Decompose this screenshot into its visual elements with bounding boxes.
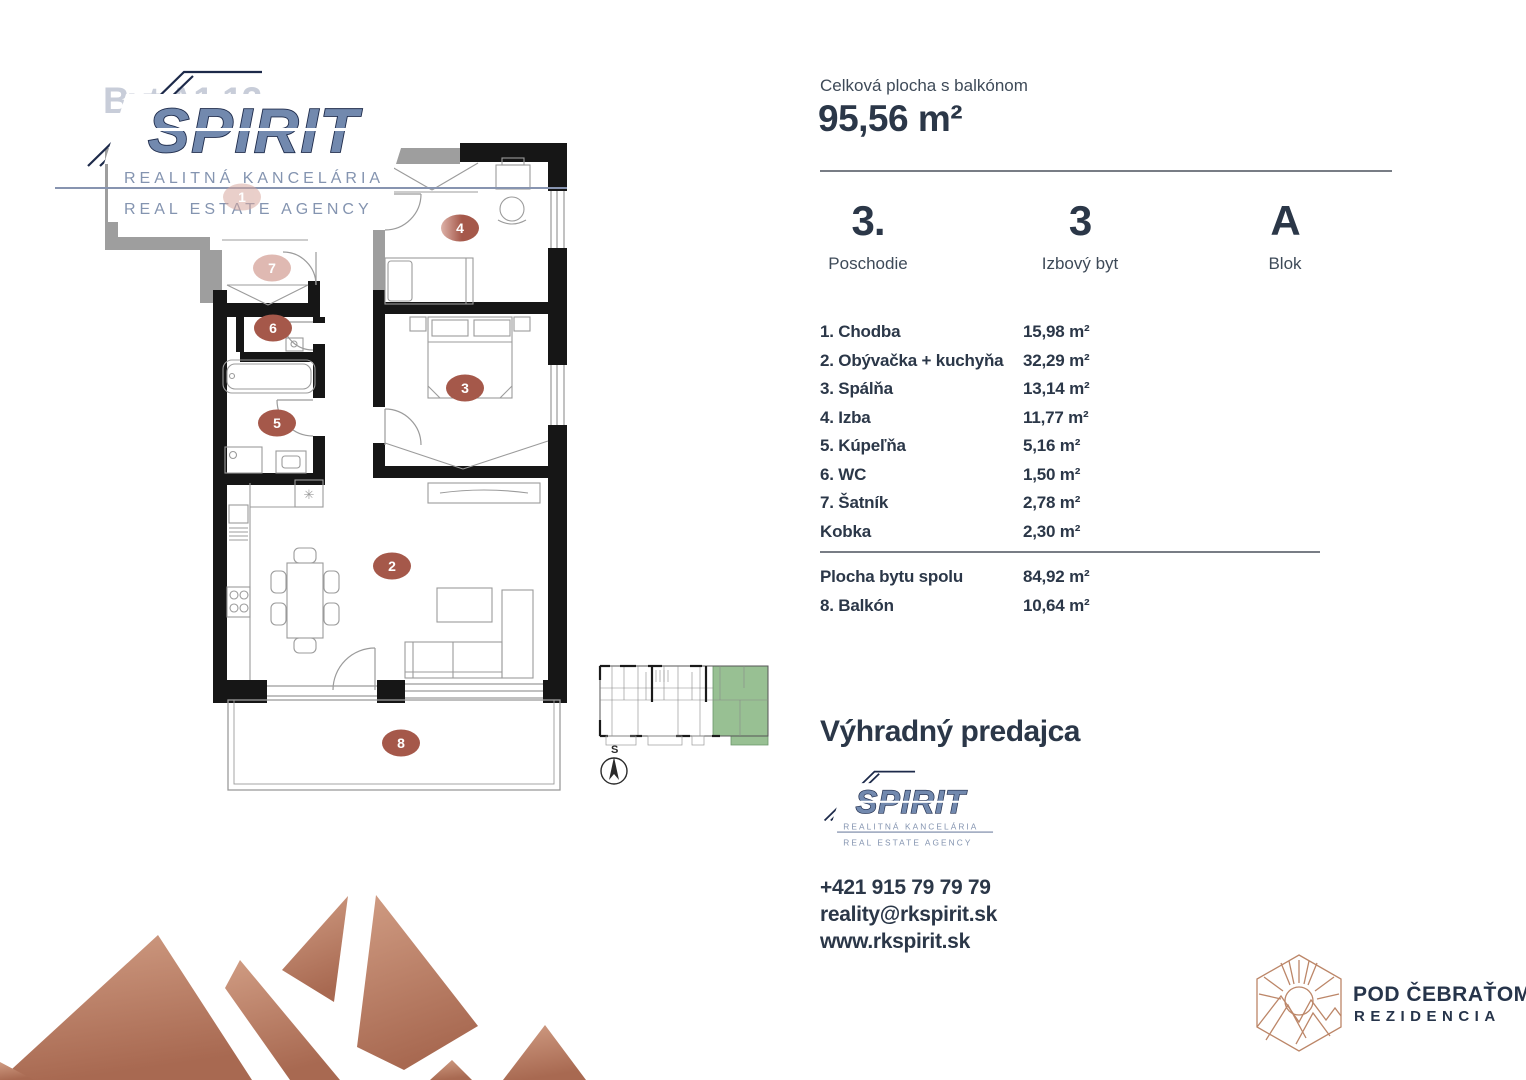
development-subtitle: REZIDENCIA — [1354, 1008, 1501, 1025]
table-row: 2. Obývačka + kuchyňa 32,29 m² — [820, 351, 1320, 379]
badge-8: 8 — [397, 735, 405, 751]
divider-top — [820, 170, 1392, 172]
development-name: POD ČEBRAŤOM — [1353, 983, 1526, 1007]
contact-web: www.rkspirit.sk — [820, 928, 997, 955]
badge-5: 5 — [273, 415, 281, 431]
total-area-label: Celková plocha s balkónom — [820, 76, 1028, 96]
attribute-floor-label: Poschodie — [788, 254, 948, 274]
logo-line1: REALITNÁ KANCELÁRIA — [124, 168, 384, 187]
rezidencia-emblem-icon — [1257, 955, 1341, 1051]
room-label: 3. Spálňa — [820, 379, 893, 398]
room-area: 2,78 m² — [1023, 493, 1080, 513]
compass-needle — [609, 757, 619, 780]
table-row: 3. Spálňa 13,14 m² — [820, 379, 1320, 407]
balcony-area: 10,64 m² — [1023, 596, 1089, 616]
room-area: 1,50 m² — [1023, 465, 1080, 485]
compass: S — [601, 744, 627, 784]
badge-7: 7 — [268, 260, 276, 276]
windows — [267, 191, 567, 703]
badge-6: 6 — [269, 320, 277, 336]
logo-line2-small: REAL ESTATE AGENCY — [843, 837, 972, 847]
attribute-floor-value: 3. — [788, 200, 948, 242]
total-label: Plocha bytu spolu — [820, 567, 963, 586]
floorplan: ✳ — [105, 143, 567, 790]
contact-block: +421 915 79 79 79 reality@rkspirit.sk ww… — [820, 874, 997, 955]
room-area: 32,29 m² — [1023, 351, 1089, 371]
spirit-logo-small: SPIRIT REALITNÁ KANCELÁRIA REAL ESTATE A… — [825, 772, 997, 848]
contact-phone: +421 915 79 79 79 — [820, 874, 997, 901]
mini-building-plan — [600, 666, 768, 745]
total-area-value: 95,56 m² — [818, 98, 962, 140]
badge-2: 2 — [388, 558, 396, 574]
seller-heading: Výhradný predajca — [820, 715, 1080, 749]
attribute-rooms-value: 3 — [1000, 200, 1160, 242]
room-label: 1. Chodba — [820, 322, 900, 341]
logo-brand-text: SPIRIT — [148, 97, 363, 166]
room-area: 13,14 m² — [1023, 379, 1089, 399]
table-row: 5. Kúpeľňa 5,16 m² — [820, 436, 1320, 464]
room-label: 7. Šatník — [820, 493, 888, 512]
attribute-block: A Blok — [1205, 200, 1365, 274]
room-area: 11,77 m² — [1023, 408, 1089, 428]
table-row: 7. Šatník 2,78 m² — [820, 493, 1320, 521]
brochure-page: ✳ Byt A1.12 SPIRIT REALITNÁ KANCELÁRIA R… — [0, 0, 1526, 1080]
contact-email: reality@rkspirit.sk — [820, 901, 997, 928]
room-area: 2,30 m² — [1023, 522, 1080, 542]
room-label: Kobka — [820, 522, 871, 541]
room-label: 2. Obývačka + kuchyňa — [820, 351, 1003, 370]
attribute-block-label: Blok — [1205, 254, 1365, 274]
balcony-label: 8. Balkón — [820, 596, 894, 615]
attribute-block-value: A — [1205, 200, 1365, 242]
table-row: Kobka 2,30 m² — [820, 522, 1320, 550]
attribute-rooms: 3 Izbový byt — [1000, 200, 1160, 274]
room-label: 4. Izba — [820, 408, 871, 427]
room-area: 15,98 m² — [1023, 322, 1089, 342]
mountain-art — [0, 895, 586, 1080]
badge-4: 4 — [456, 220, 464, 236]
room-label: 6. WC — [820, 465, 866, 484]
room-label: 5. Kúpeľňa — [820, 436, 906, 455]
table-row: 4. Izba 11,77 m² — [820, 408, 1320, 436]
table-row-balcony: 8. Balkón 10,64 m² — [820, 596, 1320, 624]
svg-text:✳: ✳ — [304, 487, 315, 502]
attribute-rooms-label: Izbový byt — [1000, 254, 1160, 274]
room-area: 5,16 m² — [1023, 436, 1080, 456]
divider-table — [820, 551, 1320, 553]
badge-3: 3 — [461, 380, 469, 396]
logo-line1-small: REALITNÁ KANCELÁRIA — [843, 821, 978, 831]
badge-1: 1 — [238, 189, 246, 205]
table-row-total: Plocha bytu spolu 84,92 m² — [820, 567, 1320, 595]
compass-label: S — [611, 744, 618, 756]
total-area: 84,92 m² — [1023, 567, 1089, 587]
table-row: 6. WC 1,50 m² — [820, 465, 1320, 493]
table-row: 1. Chodba 15,98 m² — [820, 322, 1320, 350]
attribute-floor: 3. Poschodie — [788, 200, 948, 274]
